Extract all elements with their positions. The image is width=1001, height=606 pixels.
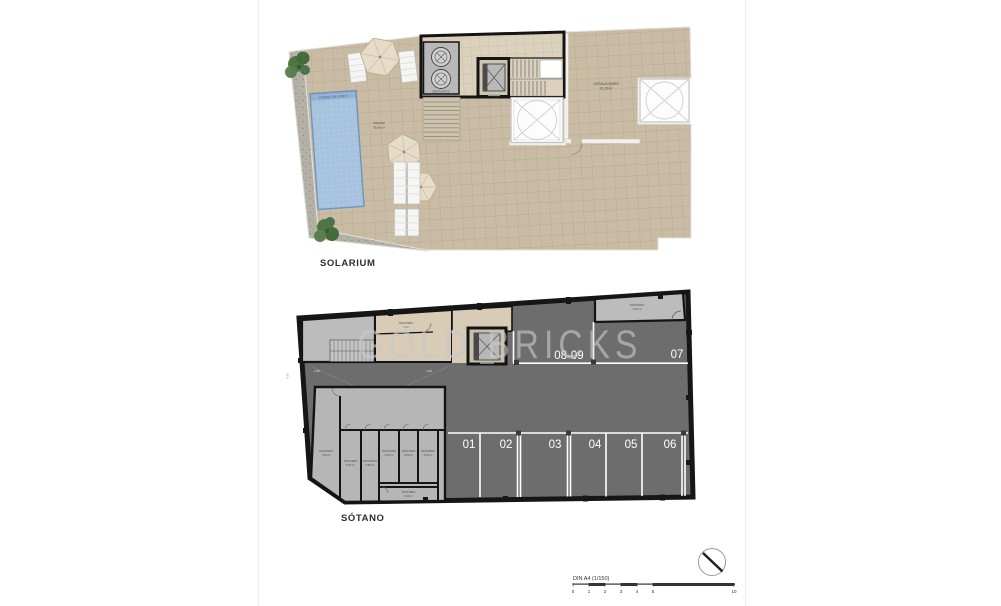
parking-stall-number: 03 xyxy=(549,439,562,451)
scale-tick: 1 xyxy=(588,589,591,594)
sotano-title: SÓTANO xyxy=(341,512,385,524)
tank-icon xyxy=(432,48,451,67)
scale-bar: DIN A4 (1/150) 0 1 2 3 4 5 10 xyxy=(572,576,737,594)
trastero-area: 5,60 m² xyxy=(346,463,355,467)
installations-area: 41,78 m² xyxy=(600,87,613,91)
trastero-area: 5,50 m² xyxy=(366,463,375,467)
solarium-plan: DEPÓSITOS xyxy=(285,27,691,269)
pool-label: PISCINA xyxy=(373,121,385,125)
parking-stall-number: 05 xyxy=(625,439,638,451)
stairs-icon xyxy=(423,98,460,141)
scale-tick: 5 xyxy=(652,589,655,594)
floor-plan-sheet: DEPÓSITOS xyxy=(0,0,1001,606)
trastero-label: TRASTERO xyxy=(382,449,396,453)
trastero-label: TRASTERO xyxy=(421,449,435,453)
scale-tick: 0 xyxy=(572,589,575,594)
trastero-label: TRASTERO xyxy=(630,303,645,307)
trastero-area: 5,00 m² xyxy=(404,453,413,457)
skylight-icon xyxy=(640,79,689,122)
skylight-icon xyxy=(511,98,563,143)
scale-title: DIN A4 (1/150) xyxy=(573,576,610,582)
pool: PISCINA 7,50 x 2,50 m xyxy=(310,91,364,210)
trastero-label: TRASTERO xyxy=(401,490,415,494)
scale-tick: 3 xyxy=(620,589,623,594)
elevator-icon xyxy=(478,59,509,97)
scale-tick: 4 xyxy=(636,589,639,594)
installations-label: INSTALACIONES xyxy=(593,82,618,86)
stairs-icon xyxy=(510,58,564,97)
trastero-label: TRASTERO xyxy=(363,459,377,463)
door-gap xyxy=(571,139,582,144)
trastero-area: 7,30 m² xyxy=(322,453,331,457)
trastero-label: TRASTERO xyxy=(401,449,415,453)
parking-stall-number: 07 xyxy=(671,349,684,361)
watermark: GOLD BRICKS xyxy=(358,323,643,367)
dimension-label: 2,55 xyxy=(314,369,320,373)
dimension-label: 2,45 xyxy=(426,369,432,373)
tank-icon xyxy=(432,70,451,89)
scale-tick: 2 xyxy=(604,589,607,594)
trastero-area: 5,00 m² xyxy=(424,453,433,457)
floor-plan-canvas: DEPÓSITOS xyxy=(0,0,1001,606)
trastero-label: TRASTERO xyxy=(343,459,357,463)
trastero-label: TRASTERO xyxy=(319,449,333,453)
trastero-area: 5,00 m² xyxy=(385,453,394,457)
lounger-icon xyxy=(398,50,418,83)
dimension-label: 4,90 xyxy=(286,373,290,379)
parking-stall-number: 02 xyxy=(500,439,513,451)
trastero-area: 7,50 m² xyxy=(632,307,641,311)
parking-stall-number: 04 xyxy=(589,439,602,451)
north-arrow-icon xyxy=(699,549,726,576)
deposits-label: DEPÓSITOS xyxy=(432,89,449,94)
parking-stall-number: 01 xyxy=(463,439,476,451)
pool-area: 35,80 m² xyxy=(373,126,385,130)
trastero-area: 6,00 m² xyxy=(404,494,413,498)
solarium-title: SOLARIUM xyxy=(320,258,375,269)
parking-stall-number: 06 xyxy=(664,439,677,451)
scale-tick: 10 xyxy=(731,589,737,594)
